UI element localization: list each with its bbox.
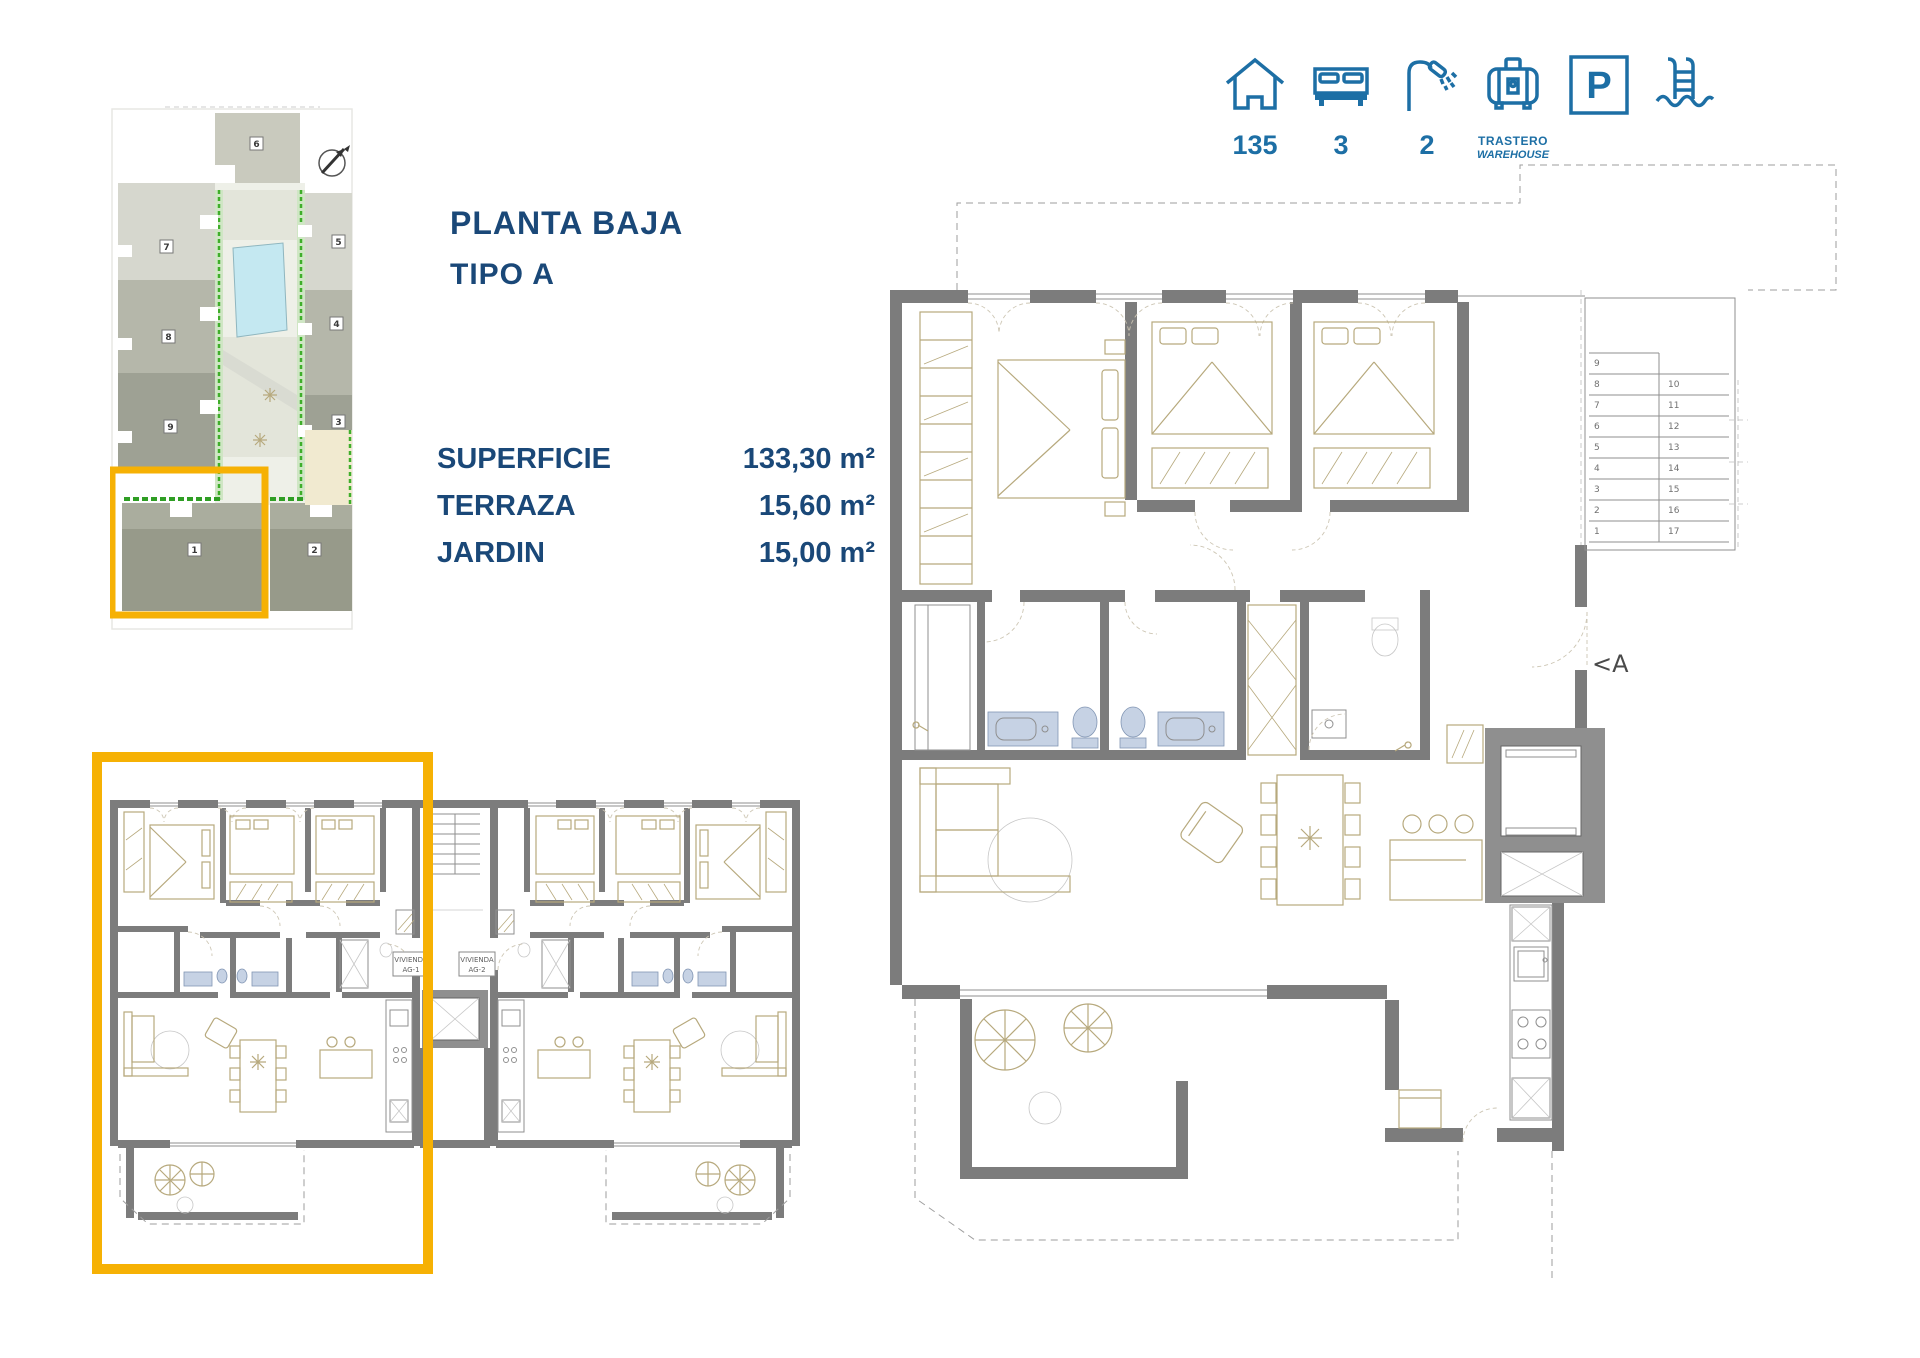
- boundary-dashes: [957, 165, 1836, 290]
- block-num-3: 3: [335, 418, 341, 428]
- svg-text:16: 16: [1668, 506, 1680, 516]
- unit2-label-line2: AG-2: [468, 966, 485, 974]
- spec-row-jardin: JARDIN 15,00 m²: [437, 530, 875, 577]
- block-num-1: 1: [191, 546, 197, 556]
- svg-text:15: 15: [1668, 485, 1679, 495]
- surface-table: SUPERFICIE 133,30 m² TERRAZA 15,60 m² JA…: [437, 436, 875, 577]
- svg-text:2: 2: [1594, 506, 1600, 516]
- washer: [1399, 1090, 1441, 1128]
- amenity-storage: TRASTERO WAREHOUSE: [1470, 50, 1556, 161]
- amenity-parking: P: [1556, 50, 1642, 161]
- main-floor-plan: 987654321 1011121314151617: [880, 150, 1850, 1280]
- site-buildings: [118, 113, 352, 611]
- svg-text:17: 17: [1668, 527, 1679, 537]
- block-num-7: 7: [163, 243, 169, 253]
- shower-icon: [1395, 50, 1459, 120]
- section-label: <A: [1592, 650, 1629, 678]
- spec-value: 15,60 m²: [759, 483, 875, 530]
- amenities-row: 135 3 2: [1212, 50, 1728, 161]
- amenity-storage-label: TRASTERO: [1470, 134, 1556, 148]
- svg-text:12: 12: [1668, 422, 1679, 432]
- unit1-label-line2: AG-1: [402, 966, 419, 974]
- small-unit-2: [490, 800, 800, 1224]
- spec-label: SUPERFICIE: [437, 436, 611, 483]
- bathroom-2: [1120, 707, 1224, 748]
- block-num-2: 2: [311, 546, 317, 556]
- garden-dashes-right: [1267, 1151, 1552, 1280]
- block-num-4: 4: [333, 320, 339, 330]
- amenity-bedrooms: 3: [1298, 50, 1384, 161]
- pool-icon: [1653, 50, 1717, 120]
- spec-value: 15,00 m²: [759, 530, 875, 577]
- elevator: [1485, 728, 1605, 903]
- stair-numbers-left: 987654321: [1594, 359, 1600, 537]
- block-num-6: 6: [253, 140, 259, 150]
- svg-text:5: 5: [1594, 443, 1600, 453]
- amenity-pool: [1642, 50, 1728, 161]
- block-num-8: 8: [165, 333, 171, 343]
- parking-letter: P: [1586, 65, 1611, 107]
- compass-icon: [319, 145, 350, 176]
- terrace: [975, 1004, 1112, 1124]
- curtain-arcs: [968, 303, 1425, 336]
- bedroom-2: [1152, 322, 1272, 488]
- spec-value: 133,30 m²: [743, 436, 875, 483]
- svg-text:7: 7: [1594, 401, 1600, 411]
- table-plant: [1298, 826, 1322, 850]
- svg-text:14: 14: [1668, 464, 1680, 474]
- svg-text:8: 8: [1594, 380, 1600, 390]
- unit-highlight-box: [97, 757, 428, 1269]
- bathroom-1: [913, 605, 1098, 750]
- small-floor-plan: VIVIENDA AG-1 VIVIENDA AG-2: [90, 750, 810, 1290]
- bedroom-3: [1314, 322, 1434, 488]
- svg-text:3: 3: [1594, 485, 1600, 495]
- plant-mark: [253, 433, 267, 447]
- parking-icon: P: [1567, 50, 1631, 120]
- svg-text:11: 11: [1668, 401, 1679, 411]
- house-icon: [1223, 50, 1287, 120]
- svg-text:10: 10: [1668, 380, 1680, 390]
- brochure-page: { "title": { "line1": "PLANTA BAJA", "li…: [0, 0, 1920, 1358]
- amenity-area: 135: [1212, 50, 1298, 161]
- block-num-9: 9: [167, 423, 173, 433]
- page-title: PLANTA BAJA: [450, 205, 683, 242]
- svg-text:4: 4: [1594, 464, 1600, 474]
- unit2-label-line1: VIVIENDA: [460, 956, 494, 964]
- svg-text:6: 6: [1594, 422, 1600, 432]
- spec-row-terraza: TERRAZA 15,60 m²: [437, 483, 875, 530]
- storage-icon: [1481, 50, 1545, 120]
- amenity-bathrooms: 2: [1384, 50, 1470, 161]
- svg-text:13: 13: [1668, 443, 1679, 453]
- unit1-label-line1: VIVIENDA: [394, 956, 428, 964]
- spec-label: JARDIN: [437, 530, 545, 577]
- bedroom-1: [920, 312, 1125, 584]
- title-block: PLANTA BAJA TIPO A: [450, 205, 683, 292]
- stair-core: 987654321 1011121314151617: [1585, 298, 1748, 550]
- site-plan: 6 7 8 9 5 4 3 1 2: [110, 95, 390, 635]
- bed-icon: [1309, 50, 1373, 120]
- spec-label: TERRAZA: [437, 483, 576, 530]
- page-subtitle: TIPO A: [450, 258, 683, 292]
- plant-mark: [263, 388, 277, 402]
- unit-labels: VIVIENDA AG-1 VIVIENDA AG-2: [393, 952, 495, 976]
- svg-text:9: 9: [1594, 359, 1600, 369]
- svg-text:1: 1: [1594, 527, 1600, 537]
- small-unit-1: [110, 800, 420, 1224]
- kitchen-counter: [1510, 905, 1552, 1120]
- laundry-closet: [1248, 605, 1296, 755]
- block-num-5: 5: [335, 238, 341, 248]
- spec-row-superficie: SUPERFICIE 133,30 m²: [437, 436, 875, 483]
- bathroom-3: [1309, 618, 1411, 751]
